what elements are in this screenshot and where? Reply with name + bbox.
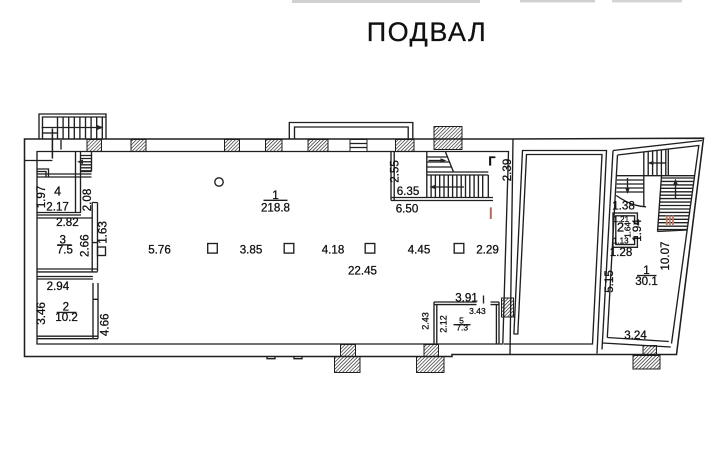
- svg-text:Г: Г: [488, 154, 495, 168]
- svg-text:ПОДВАЛ: ПОДВАЛ: [367, 17, 488, 47]
- svg-text:2.94: 2.94: [47, 280, 70, 293]
- svg-text:6.35: 6.35: [397, 185, 420, 198]
- svg-text:1.97: 1.97: [35, 186, 48, 209]
- svg-text:10.2: 10.2: [55, 311, 78, 324]
- svg-text:2.82: 2.82: [56, 216, 79, 229]
- svg-text:1.63: 1.63: [97, 221, 110, 244]
- svg-text:3.85: 3.85: [240, 244, 263, 257]
- svg-text:7.3: 7.3: [456, 322, 468, 332]
- svg-text:3.24: 3.24: [624, 329, 647, 342]
- svg-text:1.13: 1.13: [613, 237, 629, 246]
- svg-text:1.38: 1.38: [612, 200, 635, 213]
- svg-text:1.94: 1.94: [631, 219, 644, 242]
- svg-text:3.91: 3.91: [455, 292, 478, 305]
- svg-text:2.12: 2.12: [439, 315, 449, 333]
- svg-text:2.55: 2.55: [388, 160, 401, 183]
- svg-text:2.66: 2.66: [79, 234, 92, 257]
- svg-text:4.18: 4.18: [322, 244, 345, 257]
- svg-text:2.17: 2.17: [46, 201, 69, 214]
- svg-text:6.50: 6.50: [396, 203, 419, 216]
- svg-text:3.43: 3.43: [469, 306, 486, 316]
- svg-text:3.46: 3.46: [35, 302, 48, 325]
- svg-text:1.28: 1.28: [610, 246, 633, 259]
- svg-text:30.1: 30.1: [635, 275, 658, 288]
- svg-text:218.8: 218.8: [261, 202, 290, 215]
- svg-text:2.39: 2.39: [501, 159, 514, 182]
- svg-text:4.45: 4.45: [408, 244, 431, 257]
- svg-text:2.29: 2.29: [476, 244, 499, 257]
- svg-text:4: 4: [54, 185, 61, 199]
- svg-text:4.66: 4.66: [99, 314, 112, 337]
- svg-text:2.43: 2.43: [421, 312, 431, 330]
- svg-text:5.76: 5.76: [148, 244, 171, 257]
- svg-text:5.15: 5.15: [603, 270, 616, 293]
- svg-text:10.07: 10.07: [659, 241, 672, 270]
- svg-text:22.45: 22.45: [348, 265, 377, 278]
- svg-text:7.5: 7.5: [57, 244, 73, 257]
